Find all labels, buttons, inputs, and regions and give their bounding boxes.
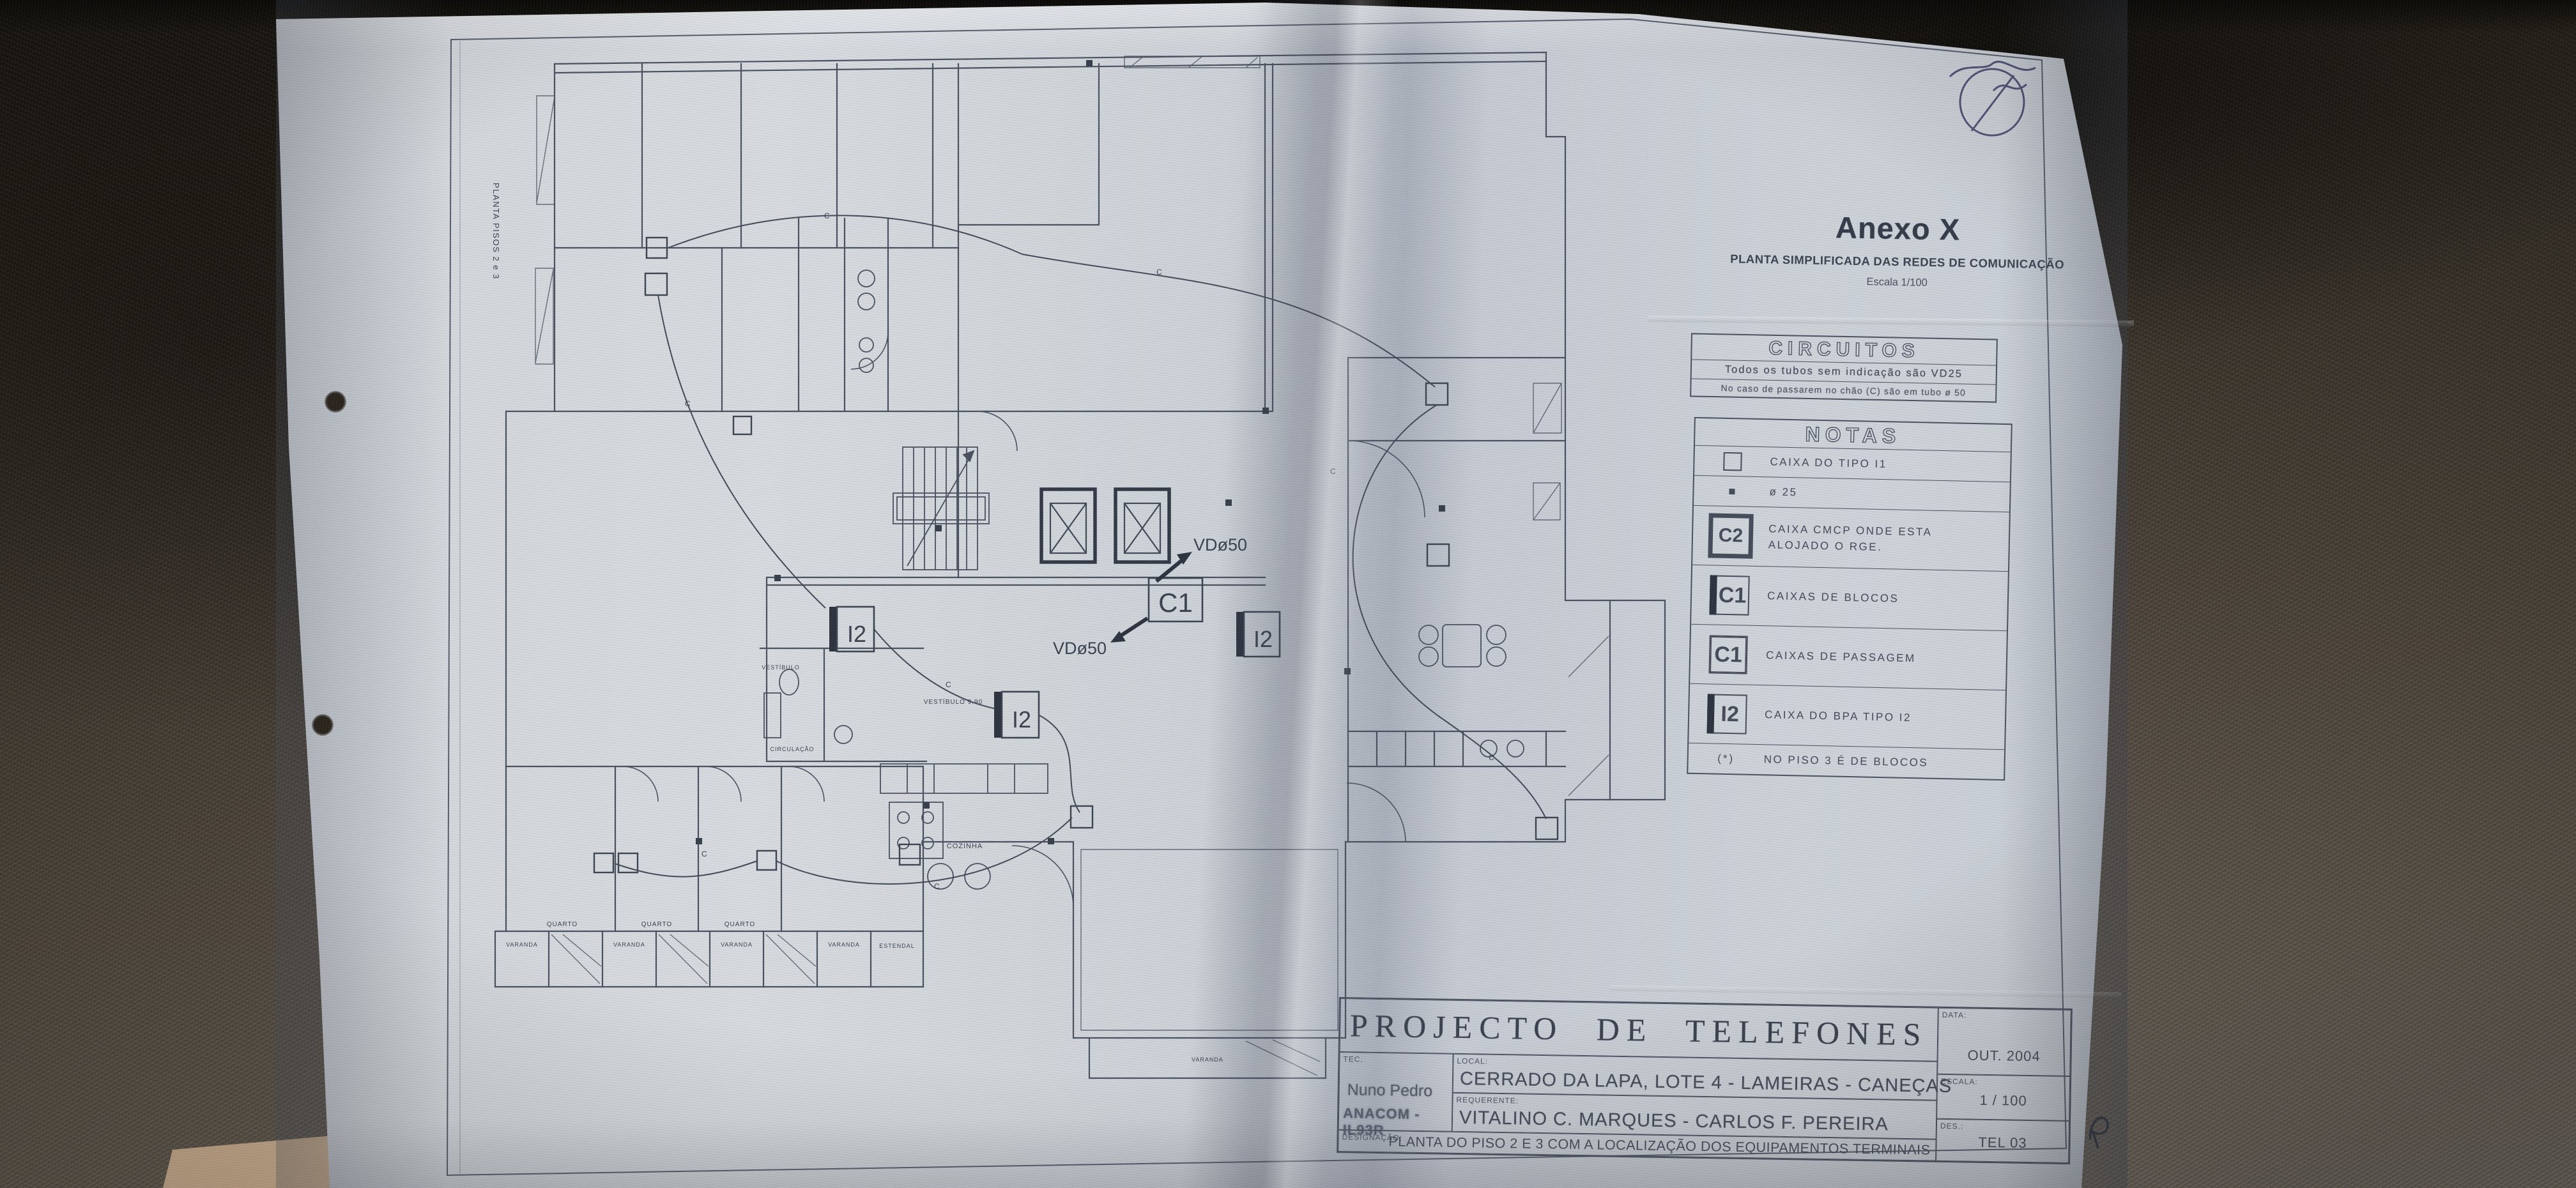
photo-of-telephone-plan: PLANTA PISOS 2 e 3: [0, 0, 2576, 1188]
photo-grain: [0, 0, 2576, 1188]
